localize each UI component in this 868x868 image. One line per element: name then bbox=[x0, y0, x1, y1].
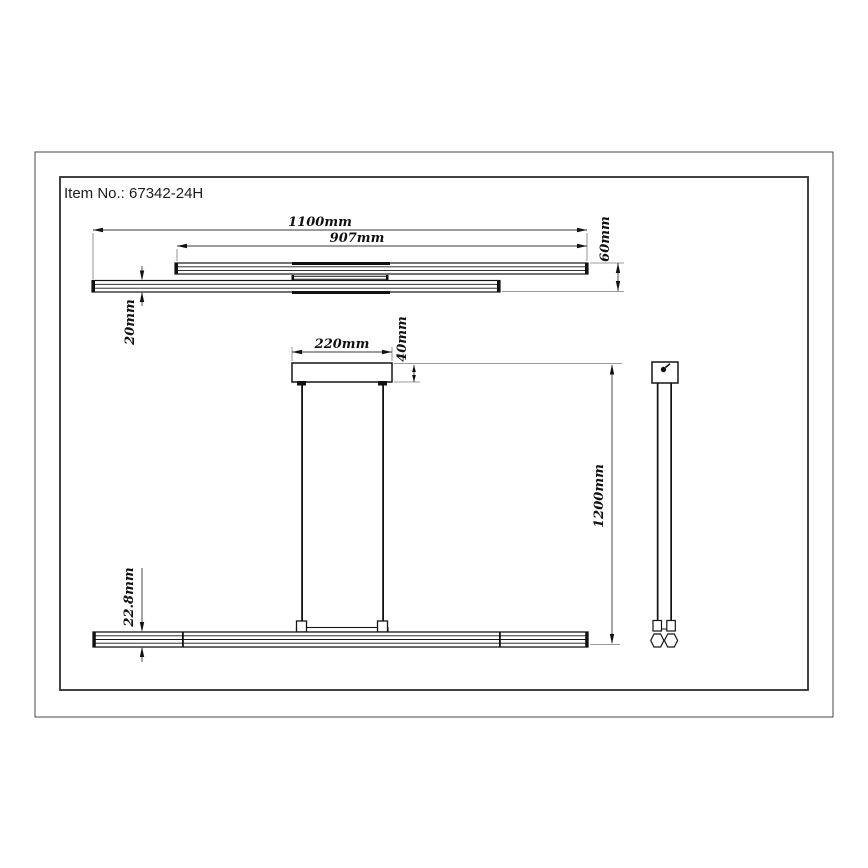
cable-grip-icon bbox=[661, 367, 666, 372]
dim-suspension-drop: 1200mm bbox=[590, 365, 620, 645]
bar-joint-right bbox=[499, 633, 501, 647]
dim-bar-profile-height-label: 22.8mm bbox=[122, 567, 137, 627]
dim-bar-depth-label: 20mm bbox=[123, 299, 138, 346]
side-wire-left bbox=[657, 383, 659, 620]
dim-fixture-depth-label: 60mm bbox=[598, 216, 613, 262]
dim-bar-depth: 20mm bbox=[123, 266, 144, 346]
side-view bbox=[651, 362, 678, 647]
item-number-label: Item No.: 67342-24H bbox=[64, 185, 203, 202]
top-view-lower-bar bbox=[92, 281, 500, 293]
suspension-wire-left bbox=[301, 385, 303, 622]
bar-cross-section-right bbox=[664, 634, 677, 647]
drawing-frame-inner bbox=[60, 177, 808, 690]
side-canopy bbox=[652, 362, 678, 383]
top-view: 1100mm 907mm bbox=[92, 215, 624, 346]
ceiling-canopy bbox=[292, 363, 392, 386]
side-wire-right bbox=[670, 383, 672, 620]
suspension-wire-right bbox=[382, 385, 384, 622]
dim-canopy-width-label: 220mm bbox=[314, 337, 370, 352]
dim-upper-bar-length-label: 907mm bbox=[330, 231, 385, 246]
dim-bar-profile-height: 22.8mm bbox=[122, 567, 144, 662]
bar-cross-section-left bbox=[651, 634, 664, 647]
dim-canopy-height: 40mm bbox=[394, 316, 622, 382]
dim-upper-bar-length: 907mm bbox=[177, 231, 587, 261]
dim-canopy-width: 220mm bbox=[292, 337, 392, 361]
dim-canopy-height-label: 40mm bbox=[395, 316, 410, 362]
dim-overall-length-label: 1100mm bbox=[288, 215, 352, 230]
dim-suspension-drop-label: 1200mm bbox=[592, 464, 607, 528]
light-bar-front bbox=[93, 632, 588, 647]
technical-drawing: Item No.: 67342-24H 1100mm 907mm bbox=[0, 0, 868, 868]
wire-mounting-plate bbox=[297, 621, 389, 632]
drawing-page: Item No.: 67342-24H 1100mm 907mm bbox=[0, 0, 868, 868]
bar-joint-left bbox=[182, 633, 184, 647]
dim-fixture-depth: 60mm bbox=[502, 216, 624, 291]
side-wire-grips bbox=[653, 621, 675, 632]
front-view: 220mm 40mm bbox=[93, 316, 622, 662]
